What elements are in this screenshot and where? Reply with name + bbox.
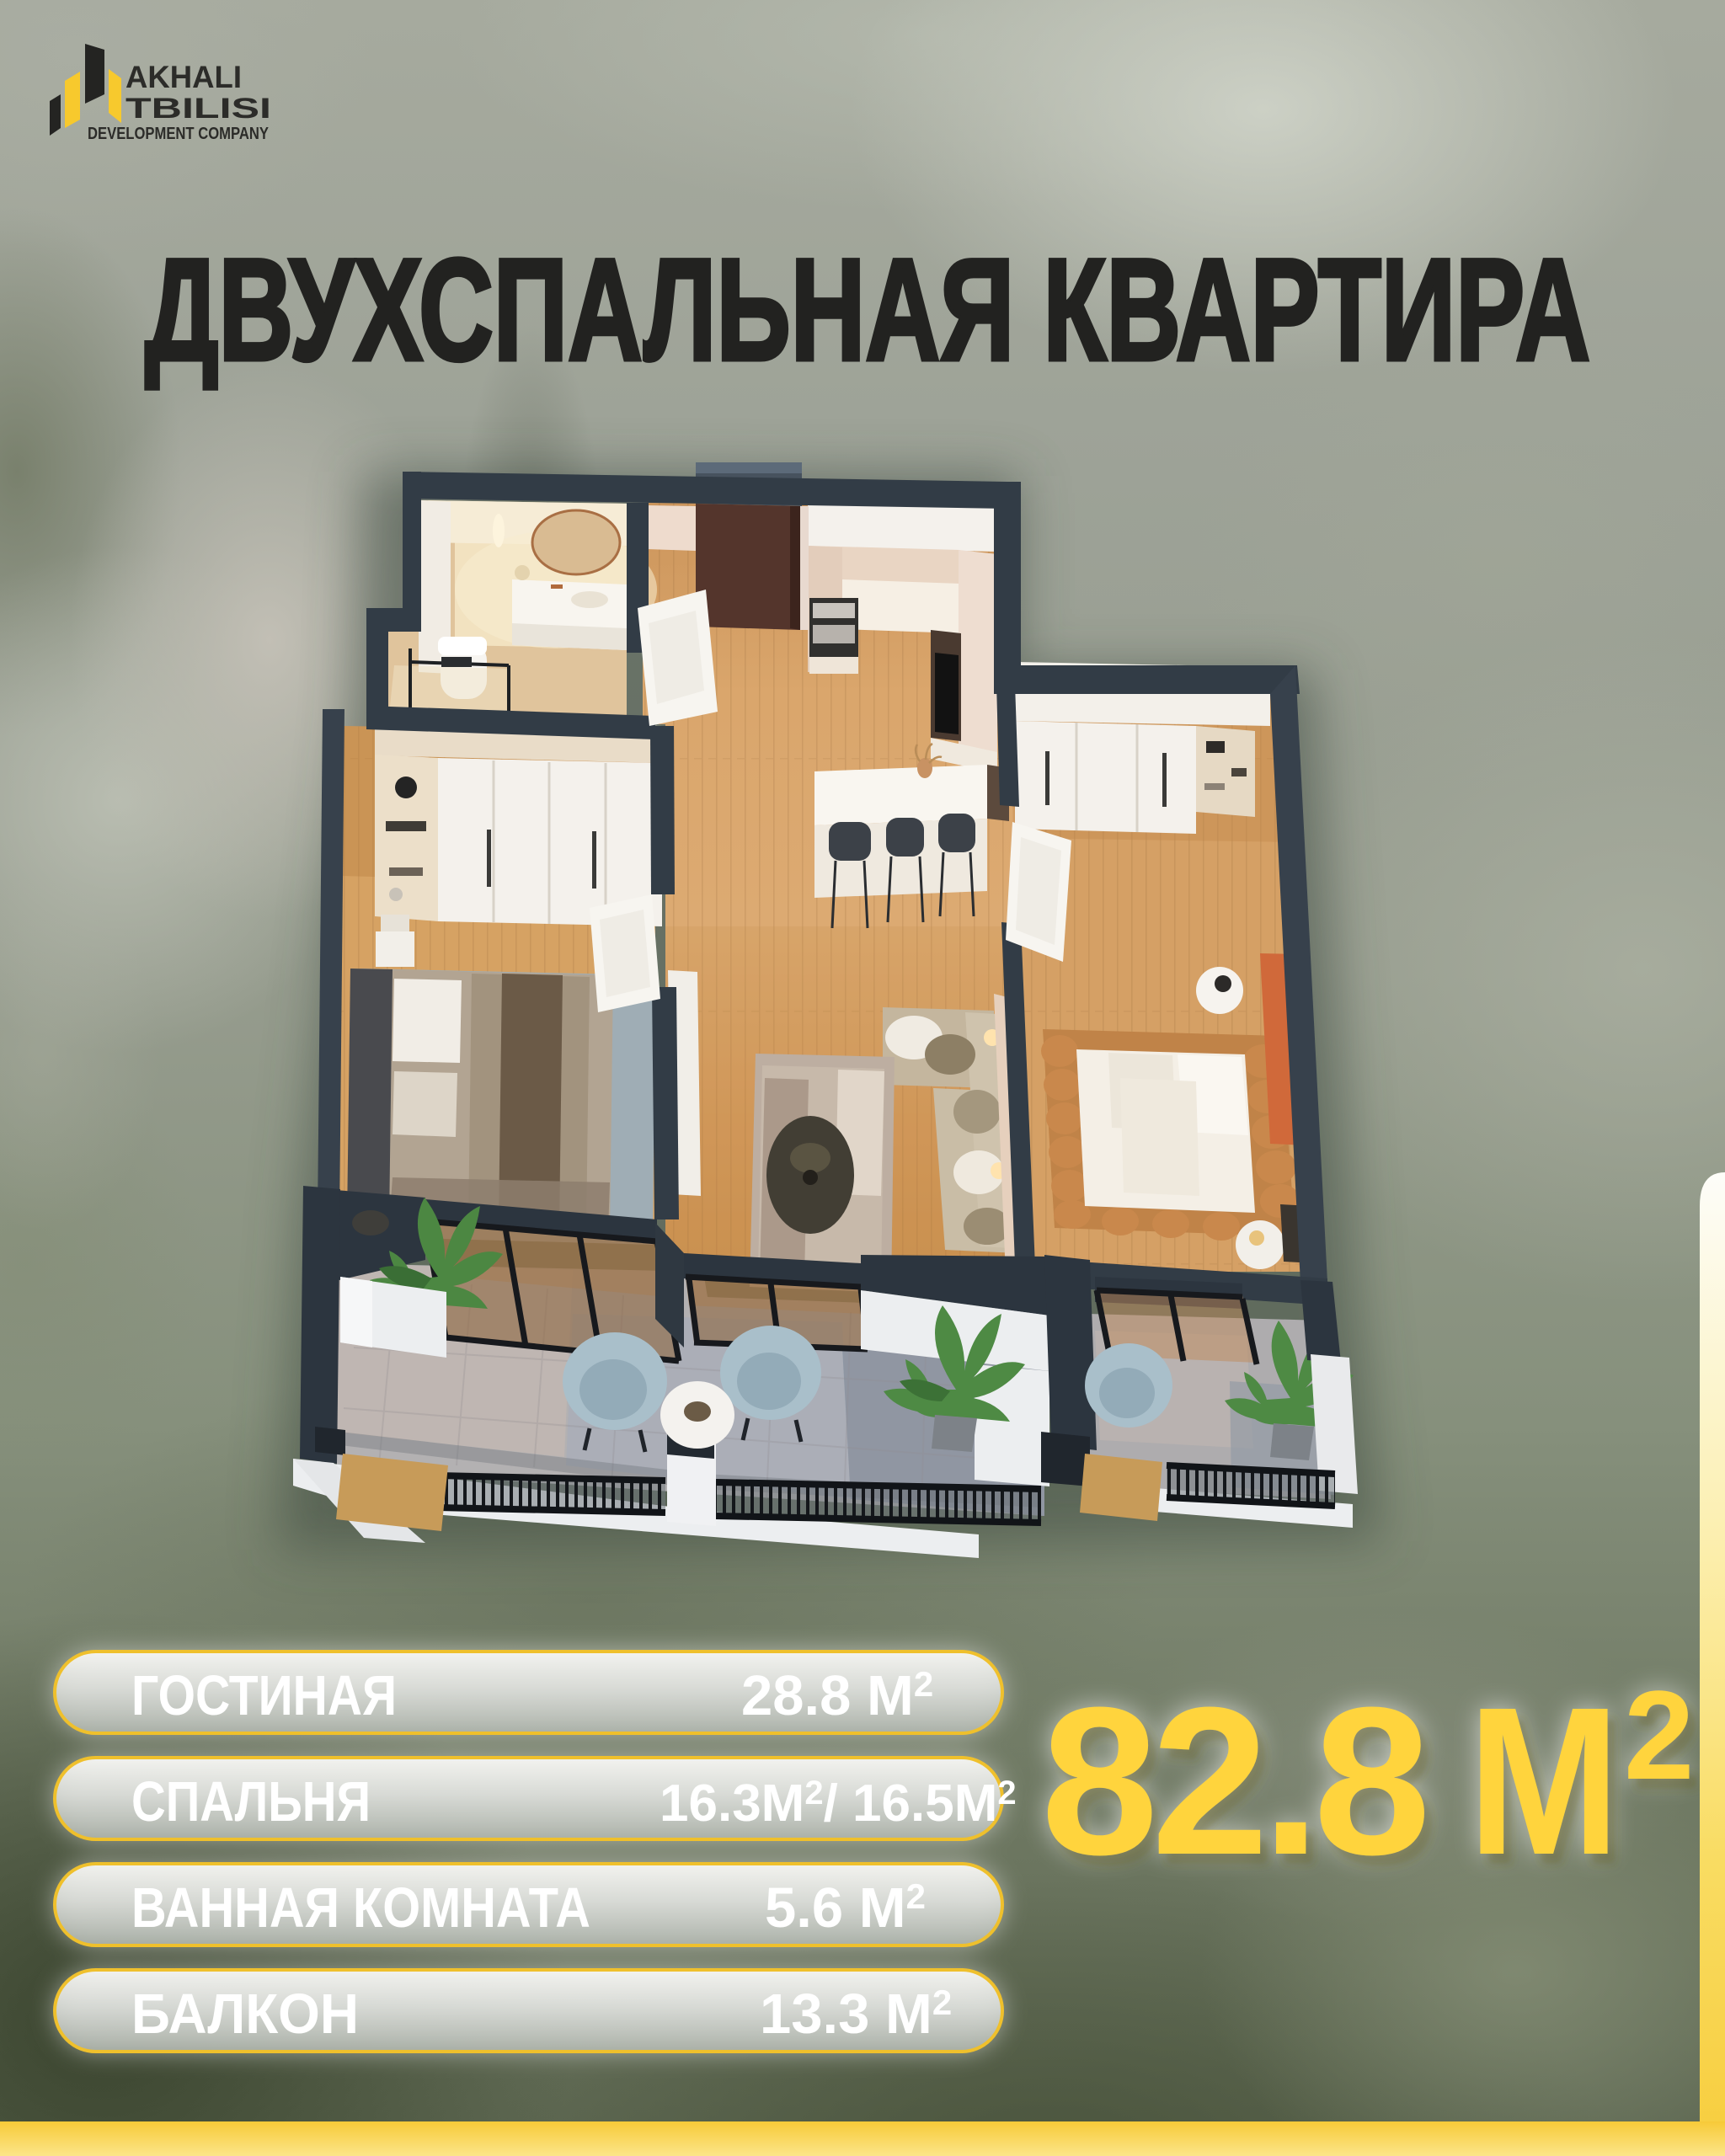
svg-text:5.6 М2: 5.6 М2	[765, 1876, 926, 1940]
svg-text:TBILISI: TBILISI	[126, 93, 271, 125]
svg-text:БАЛКОН: БАЛКОН	[131, 1983, 359, 2046]
svg-text:ГОСТИНАЯ: ГОСТИНАЯ	[131, 1664, 397, 1727]
svg-text:DEVELOPMENT COMPANY: DEVELOPMENT COMPANY	[88, 125, 270, 143]
svg-text:28.8 М2: 28.8 М2	[741, 1664, 933, 1727]
svg-text:13.3 М2: 13.3 М2	[760, 1983, 952, 2046]
svg-text:16.3М2/ 16.5М2: 16.3М2/ 16.5М2	[660, 1774, 1017, 1833]
svg-text:82.8: 82.8	[1041, 1663, 1425, 1898]
svg-text:ВАННАЯ КОМНАТА: ВАННАЯ КОМНАТА	[131, 1876, 590, 1940]
svg-text:ДВУХСПАЛЬНАЯ КВАРТИРА: ДВУХСПАЛЬНАЯ КВАРТИРА	[145, 229, 1590, 391]
svg-text:AKHALI: AKHALI	[126, 60, 242, 94]
svg-text:М: М	[1468, 1663, 1620, 1898]
svg-text:2: 2	[1624, 1664, 1694, 1806]
svg-text:СПАЛЬНЯ: СПАЛЬНЯ	[131, 1770, 371, 1833]
